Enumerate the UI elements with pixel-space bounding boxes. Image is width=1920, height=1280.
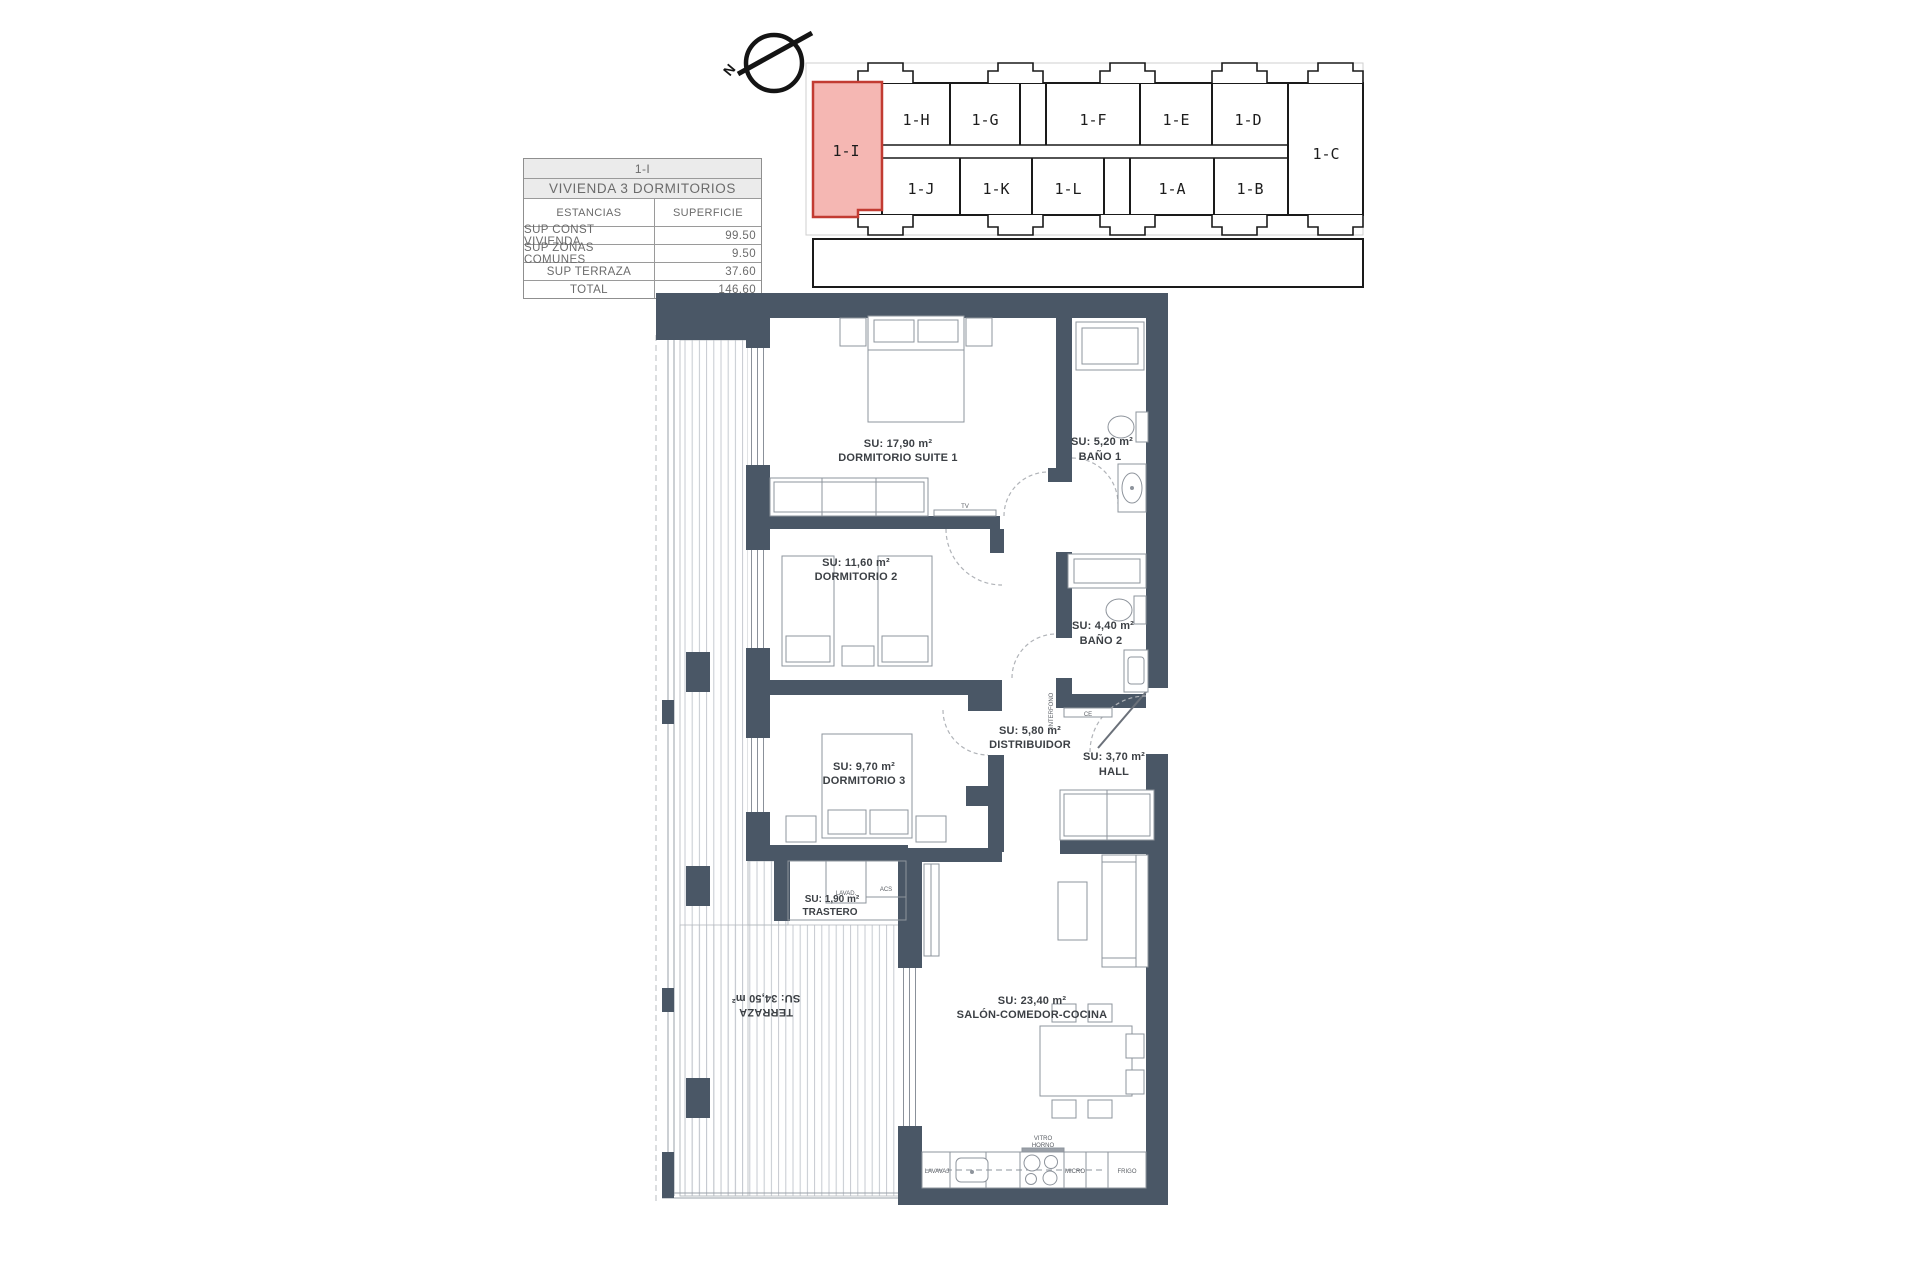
- row-label: SUP TERRAZA: [524, 263, 655, 280]
- room-name-trastero: TRASTERO: [803, 907, 858, 918]
- room-name-bano1: BAÑO 1: [1079, 450, 1122, 463]
- horno-label: HORNO: [1032, 1143, 1055, 1149]
- unit-label-1g: 1-G: [971, 111, 998, 129]
- room-name-bano2: BAÑO 2: [1080, 634, 1123, 647]
- unit-label-1j: 1-J: [907, 180, 934, 198]
- vitro-label: VITRO: [1034, 1136, 1053, 1142]
- room-name-hall: HALL: [1099, 766, 1129, 778]
- row-label: SUP ZONAS COMUNES: [524, 245, 655, 262]
- ce-label: CE: [1084, 712, 1092, 718]
- room-name-dorm2: DORMITORIO 2: [815, 571, 898, 583]
- tv-label: TV: [961, 504, 969, 510]
- room-area-bano2: SU: 4,40 m²: [1072, 620, 1134, 632]
- lavadora-label: LAVAD.: [836, 891, 857, 897]
- site-plan-svg: N: [650, 25, 1380, 295]
- unit-label-1k: 1-K: [982, 180, 1009, 198]
- north-letter: N: [720, 61, 739, 79]
- room-name-distribuidor: DISTRIBUIDOR: [989, 739, 1071, 751]
- unit-code: 1-I: [635, 162, 650, 176]
- building-outline: [813, 63, 1363, 287]
- frigo-label: FRIGO: [1118, 1169, 1137, 1175]
- room-name-salon: SALÓN-COMEDOR-COCINA: [957, 1008, 1108, 1021]
- room-area-hall: SU: 3,70 m²: [1083, 751, 1145, 763]
- room-name-dorm3: DORMITORIO 3: [823, 775, 906, 787]
- room-area-salon: SU: 23,40 m²: [998, 995, 1067, 1007]
- room-name-terraza: TERRAZA: [739, 1006, 793, 1018]
- unit-label-1d: 1-D: [1234, 111, 1261, 129]
- row-label: TOTAL: [524, 281, 655, 298]
- unit-label-1l: 1-L: [1054, 180, 1081, 198]
- col-header-estancias: ESTANCIAS: [524, 199, 655, 226]
- unit-label-1b: 1-B: [1236, 180, 1263, 198]
- unit-label-1c: 1-C: [1312, 145, 1339, 163]
- interfono-label: INTERFONO: [1049, 692, 1055, 728]
- room-area-bano1: SU: 5,20 m²: [1071, 436, 1133, 448]
- unit-label-1e: 1-E: [1162, 111, 1189, 129]
- unit-label-1i: 1-I: [832, 142, 859, 160]
- room-area-dorm2: SU: 11,60 m²: [822, 557, 890, 569]
- room-name-suite1: DORMITORIO SUITE 1: [838, 452, 958, 464]
- north-arrow-icon: N: [720, 33, 812, 91]
- lavavajillas-label: LAVAVAJ: [925, 1169, 950, 1175]
- floor-plan-svg: SU: 17,90 m² DORMITORIO SUITE 1 SU: 5,20…: [650, 288, 1175, 1210]
- plan-sheet: 1-I VIVIENDA 3 DORMITORIOS ESTANCIAS SUP…: [0, 0, 1920, 1280]
- unit-label-1f: 1-F: [1079, 111, 1106, 129]
- unit-label-1h: 1-H: [902, 111, 929, 129]
- micro-label: MICRO: [1065, 1169, 1085, 1175]
- room-area-suite1: SU: 17,90 m²: [864, 438, 933, 450]
- acs-label: ACS: [880, 887, 892, 893]
- site-lower-block: [813, 239, 1363, 287]
- room-area-terraza: SU: 34,50 m²: [732, 992, 801, 1004]
- unit-label-1a: 1-A: [1158, 180, 1185, 198]
- room-area-dorm3: SU: 9,70 m²: [833, 761, 895, 773]
